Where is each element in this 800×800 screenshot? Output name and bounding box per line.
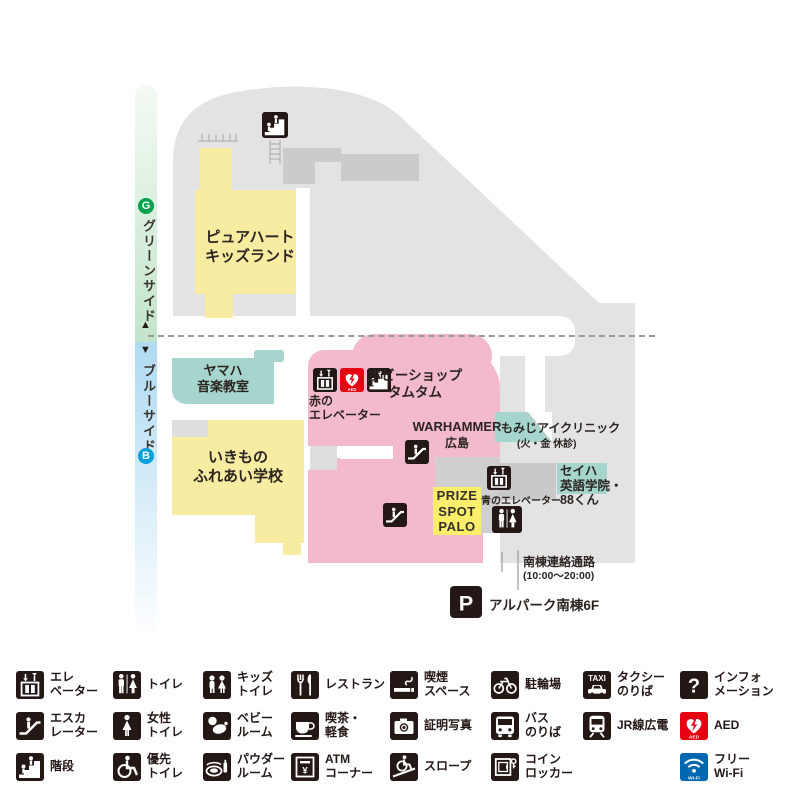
legend-item-aed: AED [680,705,774,746]
elevator-icon [313,368,337,392]
red-elevator-label: 赤のエレベーター [309,395,381,422]
baby-icon [203,712,231,740]
corridor-slot-clinic [525,356,545,414]
legend-item-train: JR線広電 [583,705,680,746]
restaurant-icon [291,671,319,699]
slope-icon [390,753,418,781]
legend-item-baby-room: ベビールーム [203,705,291,746]
side-divider-dashed-line [148,335,655,337]
blue-side-badge: B [138,448,154,464]
legend-item-kids-toilet: キッズトイレ [203,664,291,705]
legend-item-cafe: 喫茶・軽食 [291,705,390,746]
tenant-label-seiha: セイハ英語学院・88くん [560,464,623,508]
locker-icon [491,753,519,781]
stairs-icon [16,753,44,781]
powder-icon [203,753,231,781]
tenant-label-momiji: もみじアイクリニック [501,419,620,436]
service-block-b [315,148,341,162]
service-block-c [341,154,419,181]
legend-item-toilet: トイレ [113,664,203,705]
smoking-icon [390,671,418,699]
bus-icon [491,712,519,740]
wheelchair-icon [113,753,141,781]
toilet-icon [113,671,141,699]
tenant-label-ikimono: いきものふれあい学校 [168,448,308,486]
legend-item-info: インフォメーション [680,664,774,705]
legend-item-photo: 証明写真 [390,705,491,746]
toilet-icon [492,506,522,533]
tenant-ikimono-shape [172,420,304,555]
elevator-icon [487,466,511,490]
wifi-icon [680,753,708,781]
gray-notch-ikimono [172,420,208,437]
parking-icon [450,586,482,618]
green-side-badge: G [138,198,154,214]
footprint-right-band [598,303,635,356]
aed-icon [680,712,708,740]
woman-icon [113,712,141,740]
green-side-label: グリーンサイド [139,219,158,324]
tenant-label-momiji-hours: (火・金 休診) [517,435,576,450]
camera-icon [390,712,418,740]
green-side-arrow-up: ▲ [140,320,151,331]
tenant-label-prize: PRIZESPOTPALO [433,488,481,535]
tenant-label-pureheart: ピュアハートキッズランド [195,228,305,266]
stairs-icon [262,112,288,138]
blue-side-label: ブルーサイド [139,364,158,454]
tenant-label-yamaha: ヤマハ音楽教室 [172,363,274,395]
legend-item-bus: バスのりば [491,705,583,746]
escalator-icon [16,712,44,740]
legend-item-escalator: エスカレーター [16,705,113,746]
tenant-label-warhammer: WARHAMMER広島 [402,419,512,451]
blue-side-arrow-down: ▼ [140,345,151,356]
legend-item-stairs: 階段 [16,746,113,787]
elevator-icon [16,671,44,699]
legend-item-wifi: フリーWi-Fi [680,746,774,787]
legend-item-taxi: タクシーのりば [583,664,680,705]
south-corridor-hours: (10:00～20:00) [523,568,594,583]
kids-icon [203,671,231,699]
service-block-a [283,148,315,184]
train-icon [583,712,611,740]
legend-item-slope: スロープ [390,746,491,787]
legend-item-women-toilet: 女性トイレ [113,705,203,746]
legend-item-priority-toilet: 優先トイレ [113,746,203,787]
legend-item-smoking: 喫煙スペース [390,664,491,705]
south-parking-label: アルパーク南棟6F [489,594,599,614]
legend-item-restaurant: レストラン [291,664,390,705]
corridor-notch-pink [340,446,393,459]
legend-spacer [583,746,680,787]
legend-item-atm: ATMコーナー [291,746,390,787]
blue-elevator-label: 青のエレベーター [481,492,561,507]
legend-item-powder-room: パウダールーム [203,746,291,787]
legend-item-bicycle: 駐輪場 [491,664,583,705]
atm-icon [291,753,319,781]
legend-item-locker: コインロッカー [491,746,583,787]
taxi-icon [583,671,611,699]
bicycle-icon [491,671,519,699]
cafe-icon [291,712,319,740]
info-icon [680,671,708,699]
legend: エレベーター エスカレーター 階段 トイレ 女性トイレ 優先トイレ キッズトイレ… [16,664,774,787]
escalator-icon [383,503,407,527]
legend-item-elevator: エレベーター [16,664,113,705]
